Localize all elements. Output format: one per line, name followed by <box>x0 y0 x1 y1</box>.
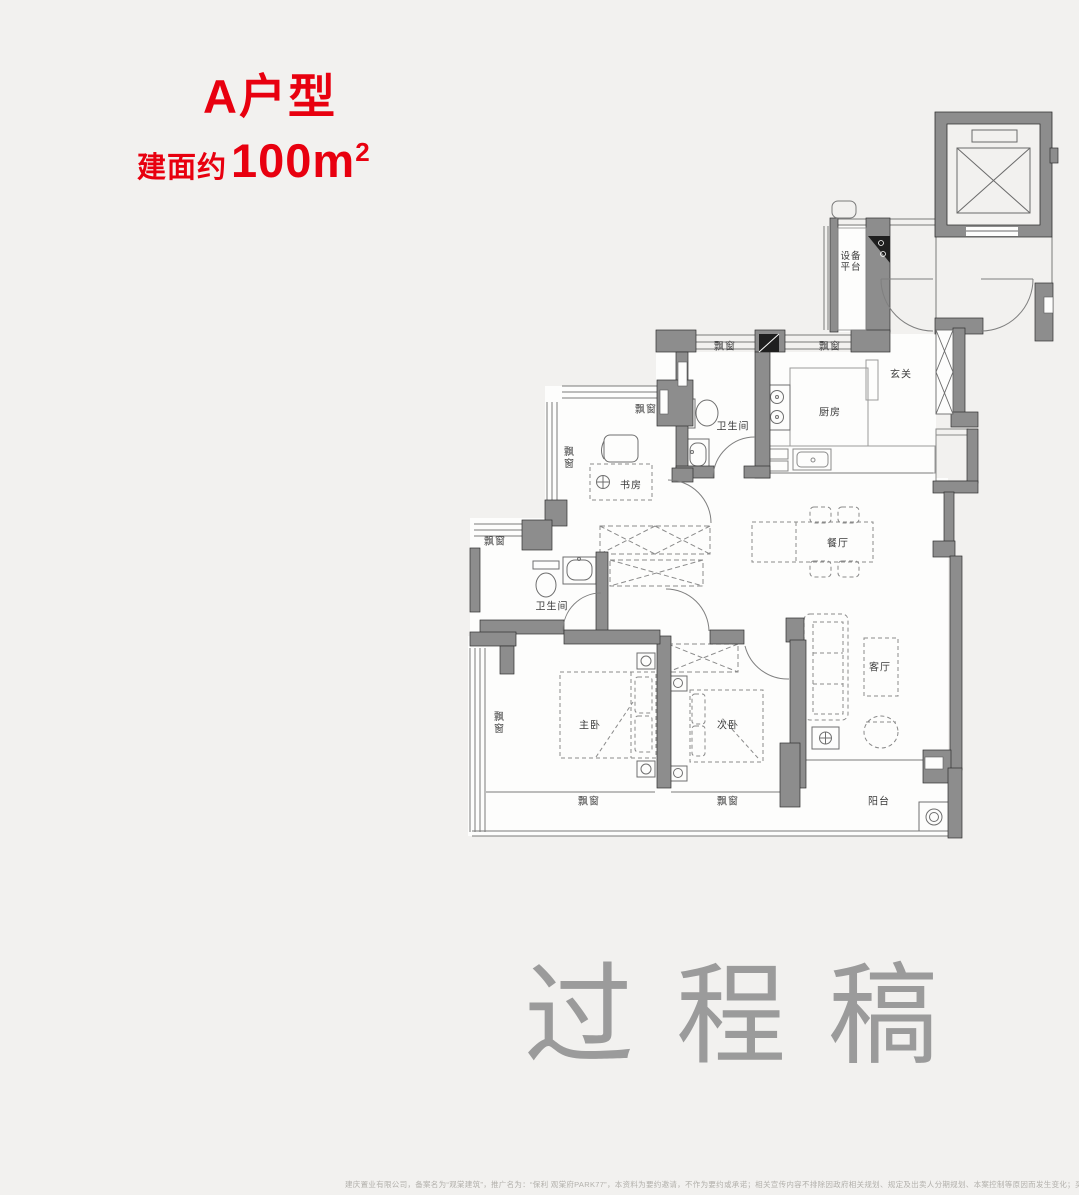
room-label-entry: 玄关 <box>890 370 912 381</box>
watermark-text: 过程稿 <box>524 926 980 1086</box>
bay-window-label-4: 飘窗 <box>562 446 573 470</box>
bay-window-label-6: 飘窗 <box>492 711 503 735</box>
bay-window-label-5: 飘窗 <box>484 537 506 548</box>
bay-window-label-8: 飘窗 <box>717 797 739 808</box>
bay-window-label-2: 飘窗 <box>819 342 841 353</box>
elevator <box>935 112 1058 237</box>
room-label-dining: 餐厅 <box>827 539 849 550</box>
entry-cabinet <box>936 429 968 481</box>
area-value: 100m <box>231 133 355 188</box>
area-line: 建面约 100m 2 <box>137 133 370 188</box>
bay-window-label-3: 飘窗 <box>635 405 657 416</box>
room-label-equipment-platform: 设备平台 <box>841 251 862 273</box>
room-label-second-bedroom: 次卧 <box>717 721 739 732</box>
room-label-balcony: 阳台 <box>868 797 890 808</box>
disclaimer-text: 建庆置业有限公司，备案名为“观棠建筑”，推广名为：“保利 观棠府PARK77”，… <box>345 1179 1075 1190</box>
area-prefix: 建面约 <box>137 144 227 186</box>
bay-window-label-1: 飘窗 <box>714 342 736 353</box>
room-label-master-bedroom: 主卧 <box>579 721 601 732</box>
bay-window-label-7: 飘窗 <box>578 797 600 808</box>
equipment-platform-edge <box>832 201 856 218</box>
floor-plan-page: 设备平台 玄关 厨房 卫生间 书房 餐厅 卫生间 主卧 次卧 客厅 阳台 飘窗 … <box>0 0 1079 1195</box>
room-label-living-room: 客厅 <box>869 663 891 674</box>
room-label-bathroom-mid: 卫生间 <box>536 602 569 613</box>
room-label-bathroom-top: 卫生间 <box>717 422 750 433</box>
title-block: A户型 建面约 100m 2 <box>137 58 370 188</box>
room-label-study: 书房 <box>620 481 642 492</box>
room-label-kitchen: 厨房 <box>819 408 841 419</box>
unit-name: A户型 <box>203 58 370 127</box>
shaft-x <box>936 330 953 414</box>
area-superscript: 2 <box>355 137 369 168</box>
